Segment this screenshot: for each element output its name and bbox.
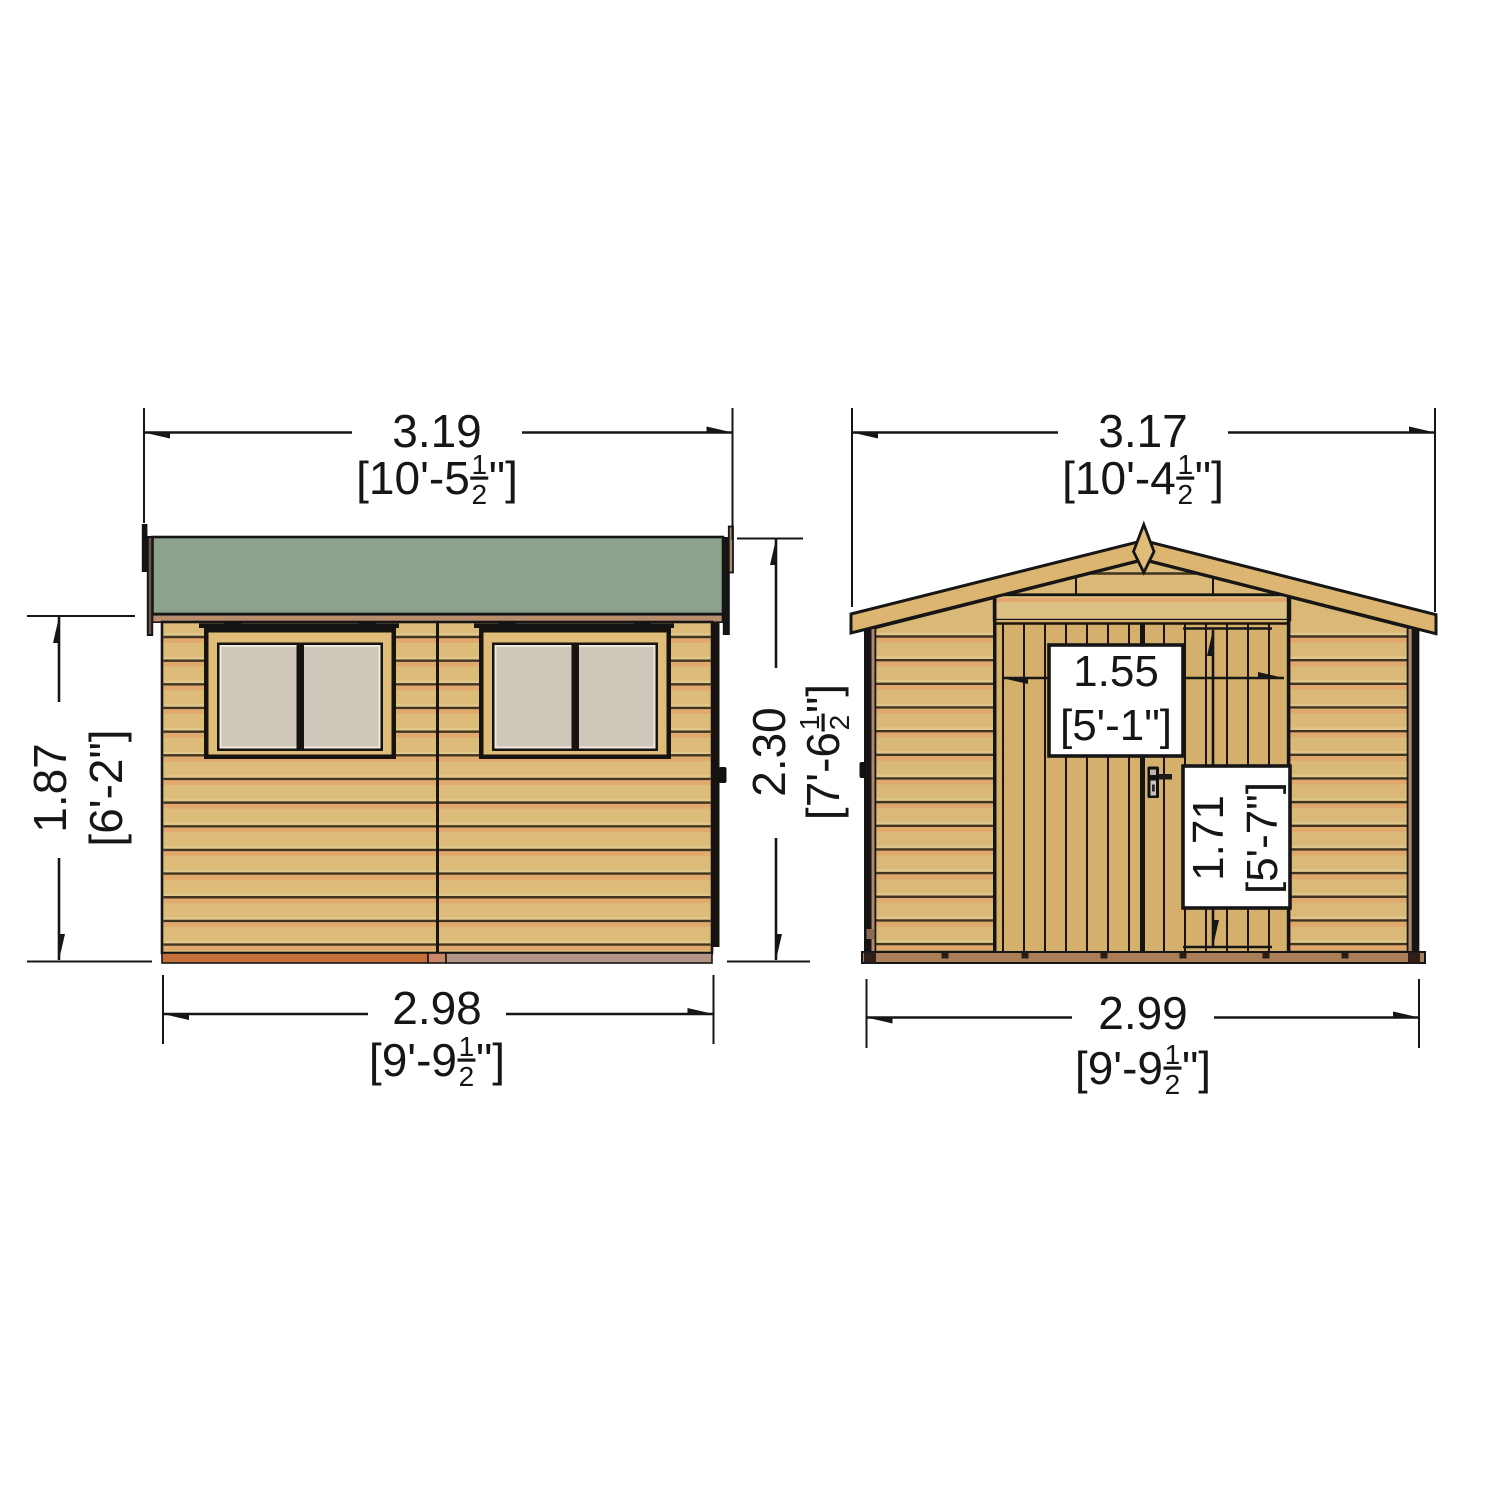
svg-text:2: 2 [1177, 479, 1193, 510]
svg-text:[6'-2"]: [6'-2"] [80, 729, 132, 846]
svg-text:2: 2 [1165, 1069, 1181, 1100]
svg-text:2: 2 [471, 479, 487, 510]
svg-text:2.99: 2.99 [1098, 987, 1188, 1039]
svg-text:3.17: 3.17 [1098, 405, 1188, 457]
svg-text:"]: "] [797, 684, 849, 713]
svg-text:"]: "] [1195, 452, 1224, 504]
svg-text:[9'-9: [9'-9 [1075, 1042, 1163, 1094]
svg-text:[5'-7"]: [5'-7"] [1238, 782, 1287, 894]
svg-text:1.87: 1.87 [24, 743, 76, 833]
svg-text:"]: "] [1182, 1042, 1211, 1094]
svg-text:1: 1 [794, 715, 825, 731]
svg-text:2.30: 2.30 [743, 707, 795, 797]
svg-text:[10'-4: [10'-4 [1062, 452, 1176, 504]
svg-text:3.19: 3.19 [392, 405, 482, 457]
svg-text:[7'-6: [7'-6 [797, 732, 849, 820]
svg-text:"]: "] [489, 452, 518, 504]
svg-text:2: 2 [459, 1061, 475, 1092]
svg-text:1: 1 [459, 1031, 475, 1062]
svg-text:2: 2 [824, 715, 855, 731]
svg-text:1: 1 [471, 449, 487, 480]
svg-text:1.71: 1.71 [1184, 795, 1233, 881]
svg-text:2.98: 2.98 [392, 982, 482, 1034]
svg-text:1: 1 [1165, 1039, 1181, 1070]
svg-text:[5'-1"]: [5'-1"] [1060, 701, 1172, 750]
svg-text:[10'-5: [10'-5 [356, 452, 470, 504]
svg-text:1: 1 [1177, 449, 1193, 480]
svg-text:[9'-9: [9'-9 [369, 1034, 457, 1086]
svg-text:"]: "] [476, 1034, 505, 1086]
svg-text:1.55: 1.55 [1073, 647, 1159, 696]
